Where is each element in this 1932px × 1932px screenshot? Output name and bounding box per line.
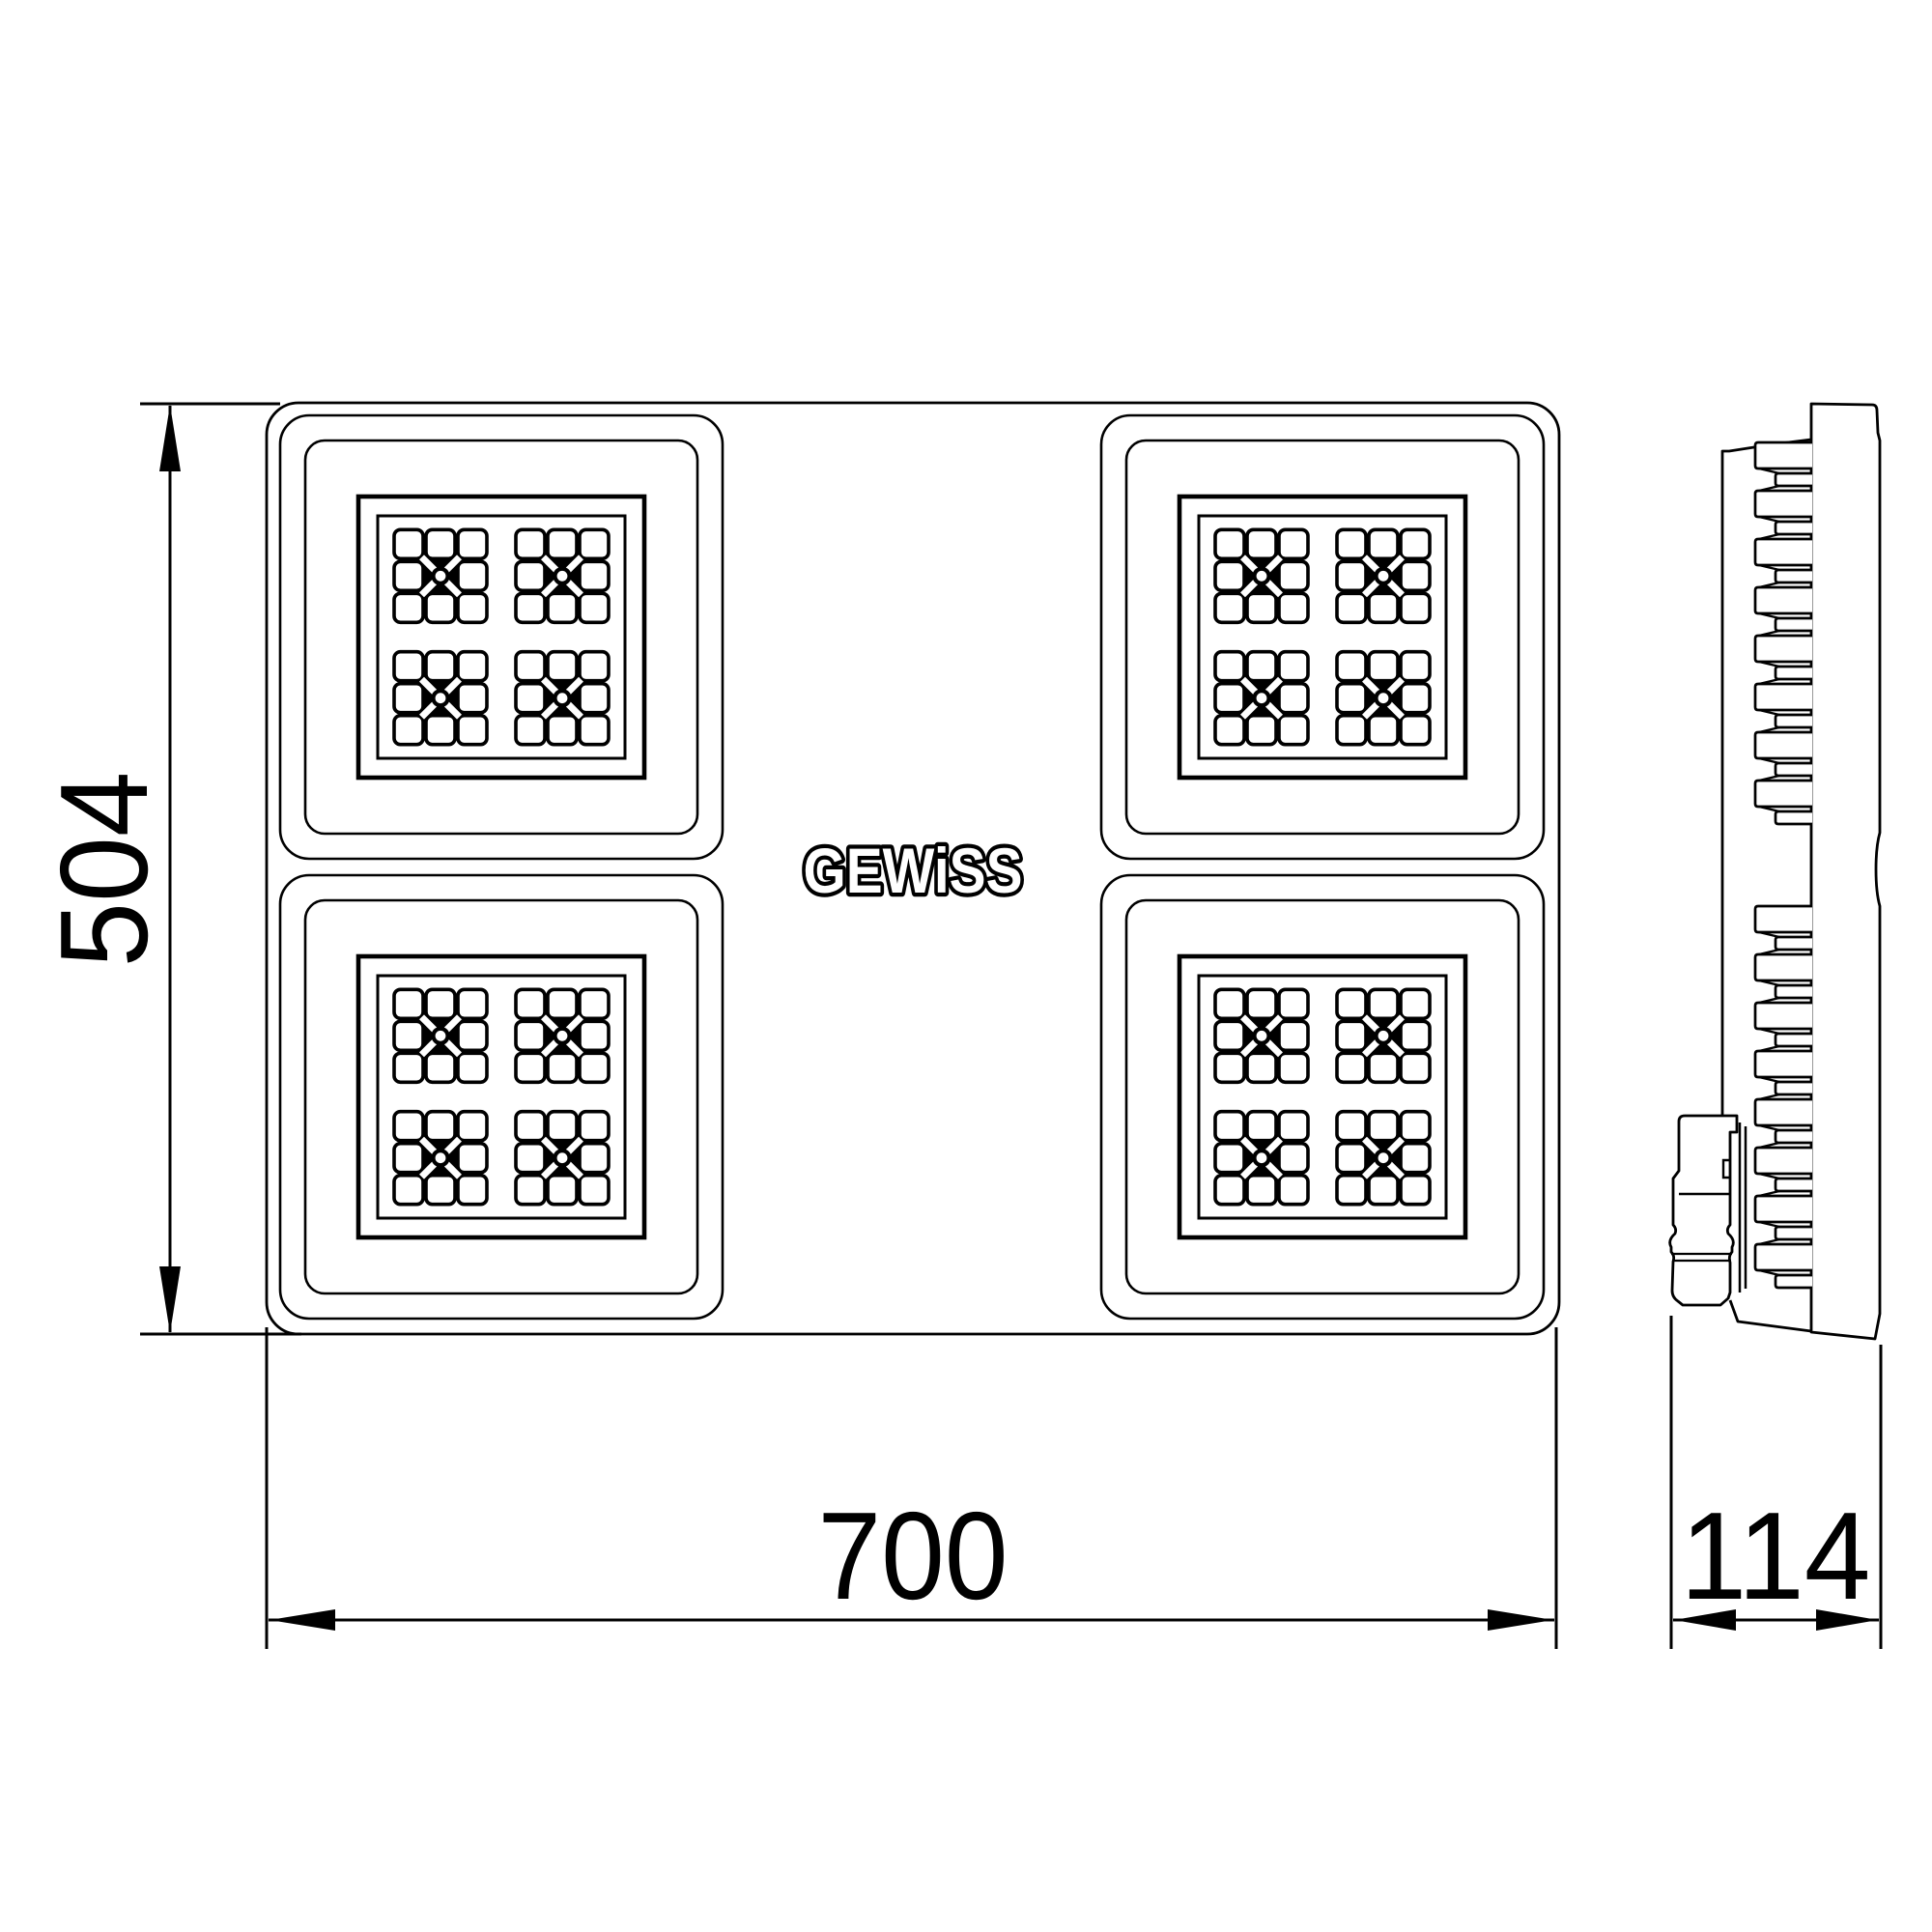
- svg-text:114: 114: [1681, 1487, 1871, 1626]
- svg-text:504: 504: [35, 772, 174, 968]
- svg-text:700: 700: [818, 1487, 1009, 1626]
- svg-text:GEWiSS: GEWiSS: [804, 835, 1023, 906]
